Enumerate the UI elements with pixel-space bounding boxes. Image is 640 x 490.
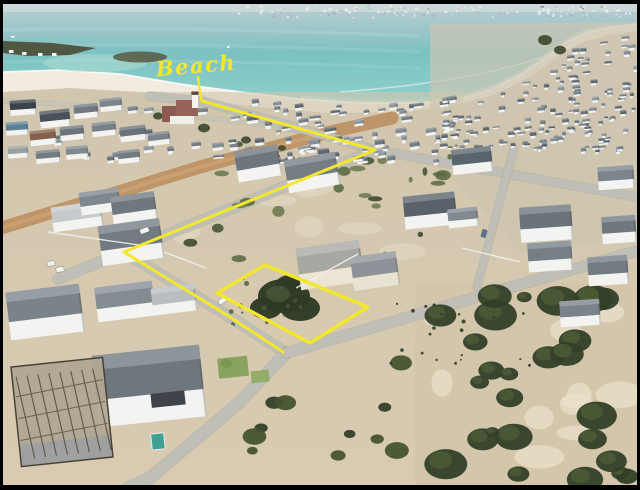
house [531, 97, 536, 101]
house [517, 98, 525, 104]
house-shadow [564, 65, 566, 68]
far-building [538, 11, 541, 13]
tree [241, 136, 251, 143]
house-shadow [604, 146, 606, 149]
house-shadow [602, 122, 604, 126]
house [59, 125, 85, 141]
far-building [461, 9, 463, 10]
plot-shrub [286, 304, 290, 308]
lawn [217, 356, 249, 379]
far-building [444, 11, 447, 13]
house [581, 62, 589, 67]
house-shadow [591, 131, 593, 134]
plot-shrub [298, 305, 302, 309]
far-building [287, 16, 289, 18]
house [107, 156, 115, 164]
far-building [377, 11, 380, 13]
small-bush [411, 309, 415, 313]
house [498, 105, 506, 112]
house [604, 61, 612, 66]
far-building [464, 7, 466, 9]
house [314, 121, 321, 126]
house [441, 134, 448, 141]
house [607, 88, 613, 93]
house [620, 110, 627, 117]
house [298, 117, 309, 125]
far-building [625, 14, 627, 15]
house-shadow [451, 146, 453, 149]
small-bush [454, 362, 457, 365]
tree [554, 46, 566, 55]
house [454, 144, 458, 148]
dune-bush [378, 403, 391, 412]
house [456, 129, 461, 133]
far-building [568, 15, 570, 16]
far-building [583, 6, 585, 7]
house-shadow [536, 85, 538, 88]
far-building [263, 6, 264, 7]
house [524, 143, 530, 147]
small-bush [485, 302, 488, 305]
house-shadow [537, 98, 539, 101]
house-shadow [610, 61, 612, 64]
far-building [248, 6, 250, 7]
shrub [232, 255, 247, 262]
far-building [403, 7, 405, 9]
far-building [402, 15, 404, 16]
house [65, 145, 88, 160]
far-building [552, 15, 554, 17]
photo-content: Beach [0, 4, 640, 490]
house [294, 103, 304, 111]
house [539, 127, 545, 133]
plot-shrub [233, 324, 235, 326]
house [350, 251, 400, 291]
house [530, 132, 537, 139]
house [575, 60, 581, 66]
shrub [183, 239, 197, 247]
far-building [560, 12, 562, 13]
house [623, 128, 629, 134]
house [561, 64, 566, 67]
dune-bush-highlight [481, 363, 495, 373]
small-bush [522, 312, 525, 315]
small-bush [519, 358, 521, 360]
house [562, 118, 570, 125]
house [147, 131, 171, 147]
house [631, 107, 636, 112]
house-shadow [556, 70, 558, 74]
house [589, 107, 597, 113]
far-building [556, 8, 558, 9]
far-building [470, 7, 472, 9]
far-building [329, 15, 331, 17]
plot-shrub [283, 315, 285, 317]
far-building [542, 9, 544, 11]
house [559, 299, 601, 328]
house-shadow [611, 89, 613, 92]
far-building [321, 15, 322, 16]
dune-bush-highlight [581, 430, 597, 442]
house [560, 80, 564, 84]
house [550, 69, 558, 75]
far-building [348, 11, 351, 13]
far-building [537, 11, 538, 12]
house-shadow [608, 140, 610, 144]
house [573, 90, 581, 96]
far-building [246, 6, 248, 8]
far-building [615, 14, 617, 16]
house [615, 105, 622, 110]
far-building [427, 12, 429, 14]
shrub [214, 171, 229, 177]
house [590, 79, 598, 85]
far-building [238, 12, 241, 14]
house-shadow [524, 132, 526, 135]
far-building [353, 17, 355, 19]
house [212, 142, 225, 152]
house [587, 255, 629, 287]
small-bush [458, 313, 460, 315]
tree [198, 124, 210, 133]
house [544, 84, 550, 91]
shrub [423, 167, 428, 176]
house [581, 110, 589, 117]
house [465, 120, 473, 125]
house-shadow [498, 126, 500, 129]
far-building [452, 14, 454, 15]
church-wall [170, 116, 194, 124]
sand-patch [431, 369, 452, 396]
far-building [414, 13, 415, 14]
small-bush [433, 303, 436, 306]
house [374, 139, 385, 148]
far-building [273, 16, 276, 18]
house [548, 126, 555, 130]
house-shadow [625, 94, 627, 97]
small-bush [389, 362, 392, 365]
house [431, 149, 438, 155]
headland-cottage [38, 53, 43, 56]
far-building [296, 17, 298, 18]
far-building [405, 11, 408, 13]
far-building [560, 15, 562, 17]
small-bush [432, 326, 436, 330]
house [628, 44, 637, 51]
house [621, 44, 628, 48]
far-building [616, 10, 618, 12]
far-building [329, 8, 331, 10]
dune-bush-highlight [553, 344, 572, 358]
far-building [261, 10, 264, 12]
dune-bush-highlight [465, 335, 479, 345]
house [99, 97, 122, 112]
small-bush [435, 359, 437, 361]
dune-bush [390, 355, 412, 370]
house [572, 80, 580, 85]
house-shadow [482, 101, 484, 104]
church-tower [192, 93, 198, 108]
far-building [345, 9, 348, 11]
far-building [485, 16, 486, 17]
dune-bush-highlight [502, 368, 512, 375]
house [523, 90, 529, 96]
far-building [601, 6, 604, 8]
dune-bush-highlight [518, 293, 526, 299]
far-building [567, 14, 568, 15]
dune-bush-highlight [428, 306, 446, 319]
house [151, 283, 198, 315]
small-bush [461, 354, 463, 356]
house-shadow [575, 75, 577, 78]
house [598, 121, 603, 126]
far-building [583, 17, 586, 19]
far-building [540, 6, 542, 7]
sand-patch [338, 222, 382, 235]
far-building [382, 13, 385, 15]
headland-cottage [52, 53, 57, 56]
house-shadow [588, 146, 590, 149]
far-building [387, 17, 388, 18]
shrub [272, 206, 284, 217]
house-shadow [585, 49, 587, 54]
shrub [368, 196, 382, 201]
house [228, 139, 236, 145]
far-building [284, 9, 285, 10]
boat [11, 36, 15, 38]
far-building [481, 9, 482, 10]
plot-shrub [293, 298, 297, 302]
small-bush [421, 352, 424, 355]
house [440, 143, 448, 149]
far-building [568, 8, 570, 10]
far-building [590, 16, 592, 17]
house [447, 206, 479, 228]
house [605, 50, 611, 56]
house [387, 155, 397, 165]
far-building [615, 12, 616, 13]
far-building [260, 5, 263, 7]
dune-bush-highlight [470, 430, 487, 443]
far-building [326, 11, 327, 12]
dune-bush-highlight [499, 390, 514, 401]
house-shadow [590, 127, 592, 130]
shrub [418, 232, 424, 237]
far-building [396, 14, 398, 15]
far-building [431, 15, 434, 17]
photo-canvas: Beach [0, 0, 640, 490]
far-building [572, 7, 574, 8]
construction-site [11, 357, 113, 466]
far-building [506, 12, 508, 14]
shrub [212, 224, 224, 233]
plot-shrub [244, 281, 249, 286]
far-building [493, 11, 494, 12]
far-building [477, 12, 479, 14]
house [537, 107, 545, 113]
house [574, 102, 580, 106]
far-building [259, 12, 262, 14]
house [399, 109, 407, 116]
far-building [328, 14, 330, 16]
dune-bush-highlight [499, 426, 520, 441]
house-shadow [606, 42, 608, 45]
far-building [391, 8, 393, 10]
small-bush [460, 359, 462, 361]
house [442, 97, 448, 103]
house-shadow [456, 145, 458, 148]
house [451, 146, 494, 175]
far-building [367, 5, 369, 7]
far-building [307, 6, 309, 8]
house [581, 147, 587, 154]
far-building [280, 12, 282, 14]
far-building [547, 9, 550, 11]
house [592, 145, 600, 150]
far-building [625, 12, 627, 13]
house-shadow [529, 82, 531, 85]
far-building [582, 12, 584, 14]
house [556, 77, 561, 82]
dune-bush-highlight [472, 377, 482, 385]
house [168, 148, 174, 153]
far-building [344, 17, 345, 18]
far-building [347, 14, 350, 16]
house [276, 129, 282, 135]
house-shadow [529, 143, 531, 146]
house [533, 84, 538, 88]
house [597, 165, 635, 190]
house [610, 115, 615, 120]
house-shadow [553, 127, 555, 130]
far-building [400, 11, 401, 12]
far-building [583, 15, 584, 16]
far-building [355, 8, 357, 10]
small-bush [493, 300, 496, 303]
house [458, 115, 464, 120]
far-building [271, 11, 273, 13]
far-building [472, 9, 474, 11]
house [10, 99, 37, 116]
far-building [601, 16, 603, 18]
far-building [547, 11, 550, 13]
far-building [456, 6, 458, 8]
far-building [580, 6, 583, 8]
house [363, 109, 369, 115]
far-building [387, 11, 389, 13]
house [474, 116, 481, 122]
far-building [305, 8, 308, 10]
far-building [592, 10, 594, 12]
house [469, 131, 477, 136]
house [29, 129, 57, 147]
church-tower-cap [191, 92, 198, 95]
dune-bush-highlight [570, 469, 590, 484]
house [6, 121, 29, 136]
house [622, 81, 629, 87]
small-bush [492, 316, 495, 319]
house [5, 284, 84, 341]
shrub [371, 203, 381, 208]
house [8, 145, 29, 158]
house-shadow [492, 145, 494, 148]
far-building [327, 11, 328, 12]
house [623, 87, 631, 93]
shrub [433, 172, 447, 177]
house-shadow [589, 71, 591, 74]
far-building [605, 9, 608, 11]
house [624, 50, 631, 57]
house [616, 146, 624, 152]
far-building [456, 10, 458, 12]
house [567, 66, 573, 72]
swimming-pool [151, 433, 166, 450]
far-building [580, 8, 582, 10]
house [443, 119, 450, 125]
house [588, 130, 593, 135]
far-building [279, 10, 281, 11]
far-building [413, 17, 415, 18]
house [94, 281, 156, 323]
dune-bush-highlight [429, 451, 453, 468]
house [525, 117, 532, 124]
far-building [516, 12, 518, 14]
plot-shrub [280, 286, 283, 289]
house [144, 107, 154, 114]
far-building [571, 12, 573, 13]
far-building [553, 14, 555, 16]
house-shadow [629, 88, 631, 92]
house [255, 137, 265, 146]
far-building [500, 13, 502, 15]
house [545, 130, 549, 135]
far-building [479, 6, 481, 8]
house-shadow [626, 45, 628, 48]
house [579, 48, 586, 54]
far-building [277, 9, 278, 10]
aerial-photo: Beach [0, 0, 640, 490]
dune-bush [331, 450, 346, 460]
house [483, 126, 490, 133]
house [513, 126, 521, 132]
far-building [338, 10, 340, 12]
far-building [570, 14, 573, 16]
far-building [331, 6, 332, 7]
house [436, 137, 441, 142]
boat [227, 46, 230, 48]
far-building [289, 15, 291, 17]
shrub [359, 193, 372, 198]
house [558, 86, 565, 93]
house-shadow [476, 132, 478, 135]
house-shadow [506, 142, 508, 145]
dune-bush [344, 430, 356, 438]
house [336, 104, 342, 109]
far-building [389, 5, 392, 7]
far-building [427, 8, 430, 10]
headland-cottage [9, 50, 14, 53]
far-building [394, 12, 396, 14]
far-building [614, 7, 615, 8]
house-shadow [563, 81, 565, 84]
far-building [631, 5, 632, 6]
lawn [251, 370, 270, 384]
dune-bush [275, 395, 296, 410]
plot-shrub [262, 305, 267, 310]
small-bush [424, 305, 427, 308]
small-bush [528, 364, 531, 367]
tree [153, 112, 163, 119]
